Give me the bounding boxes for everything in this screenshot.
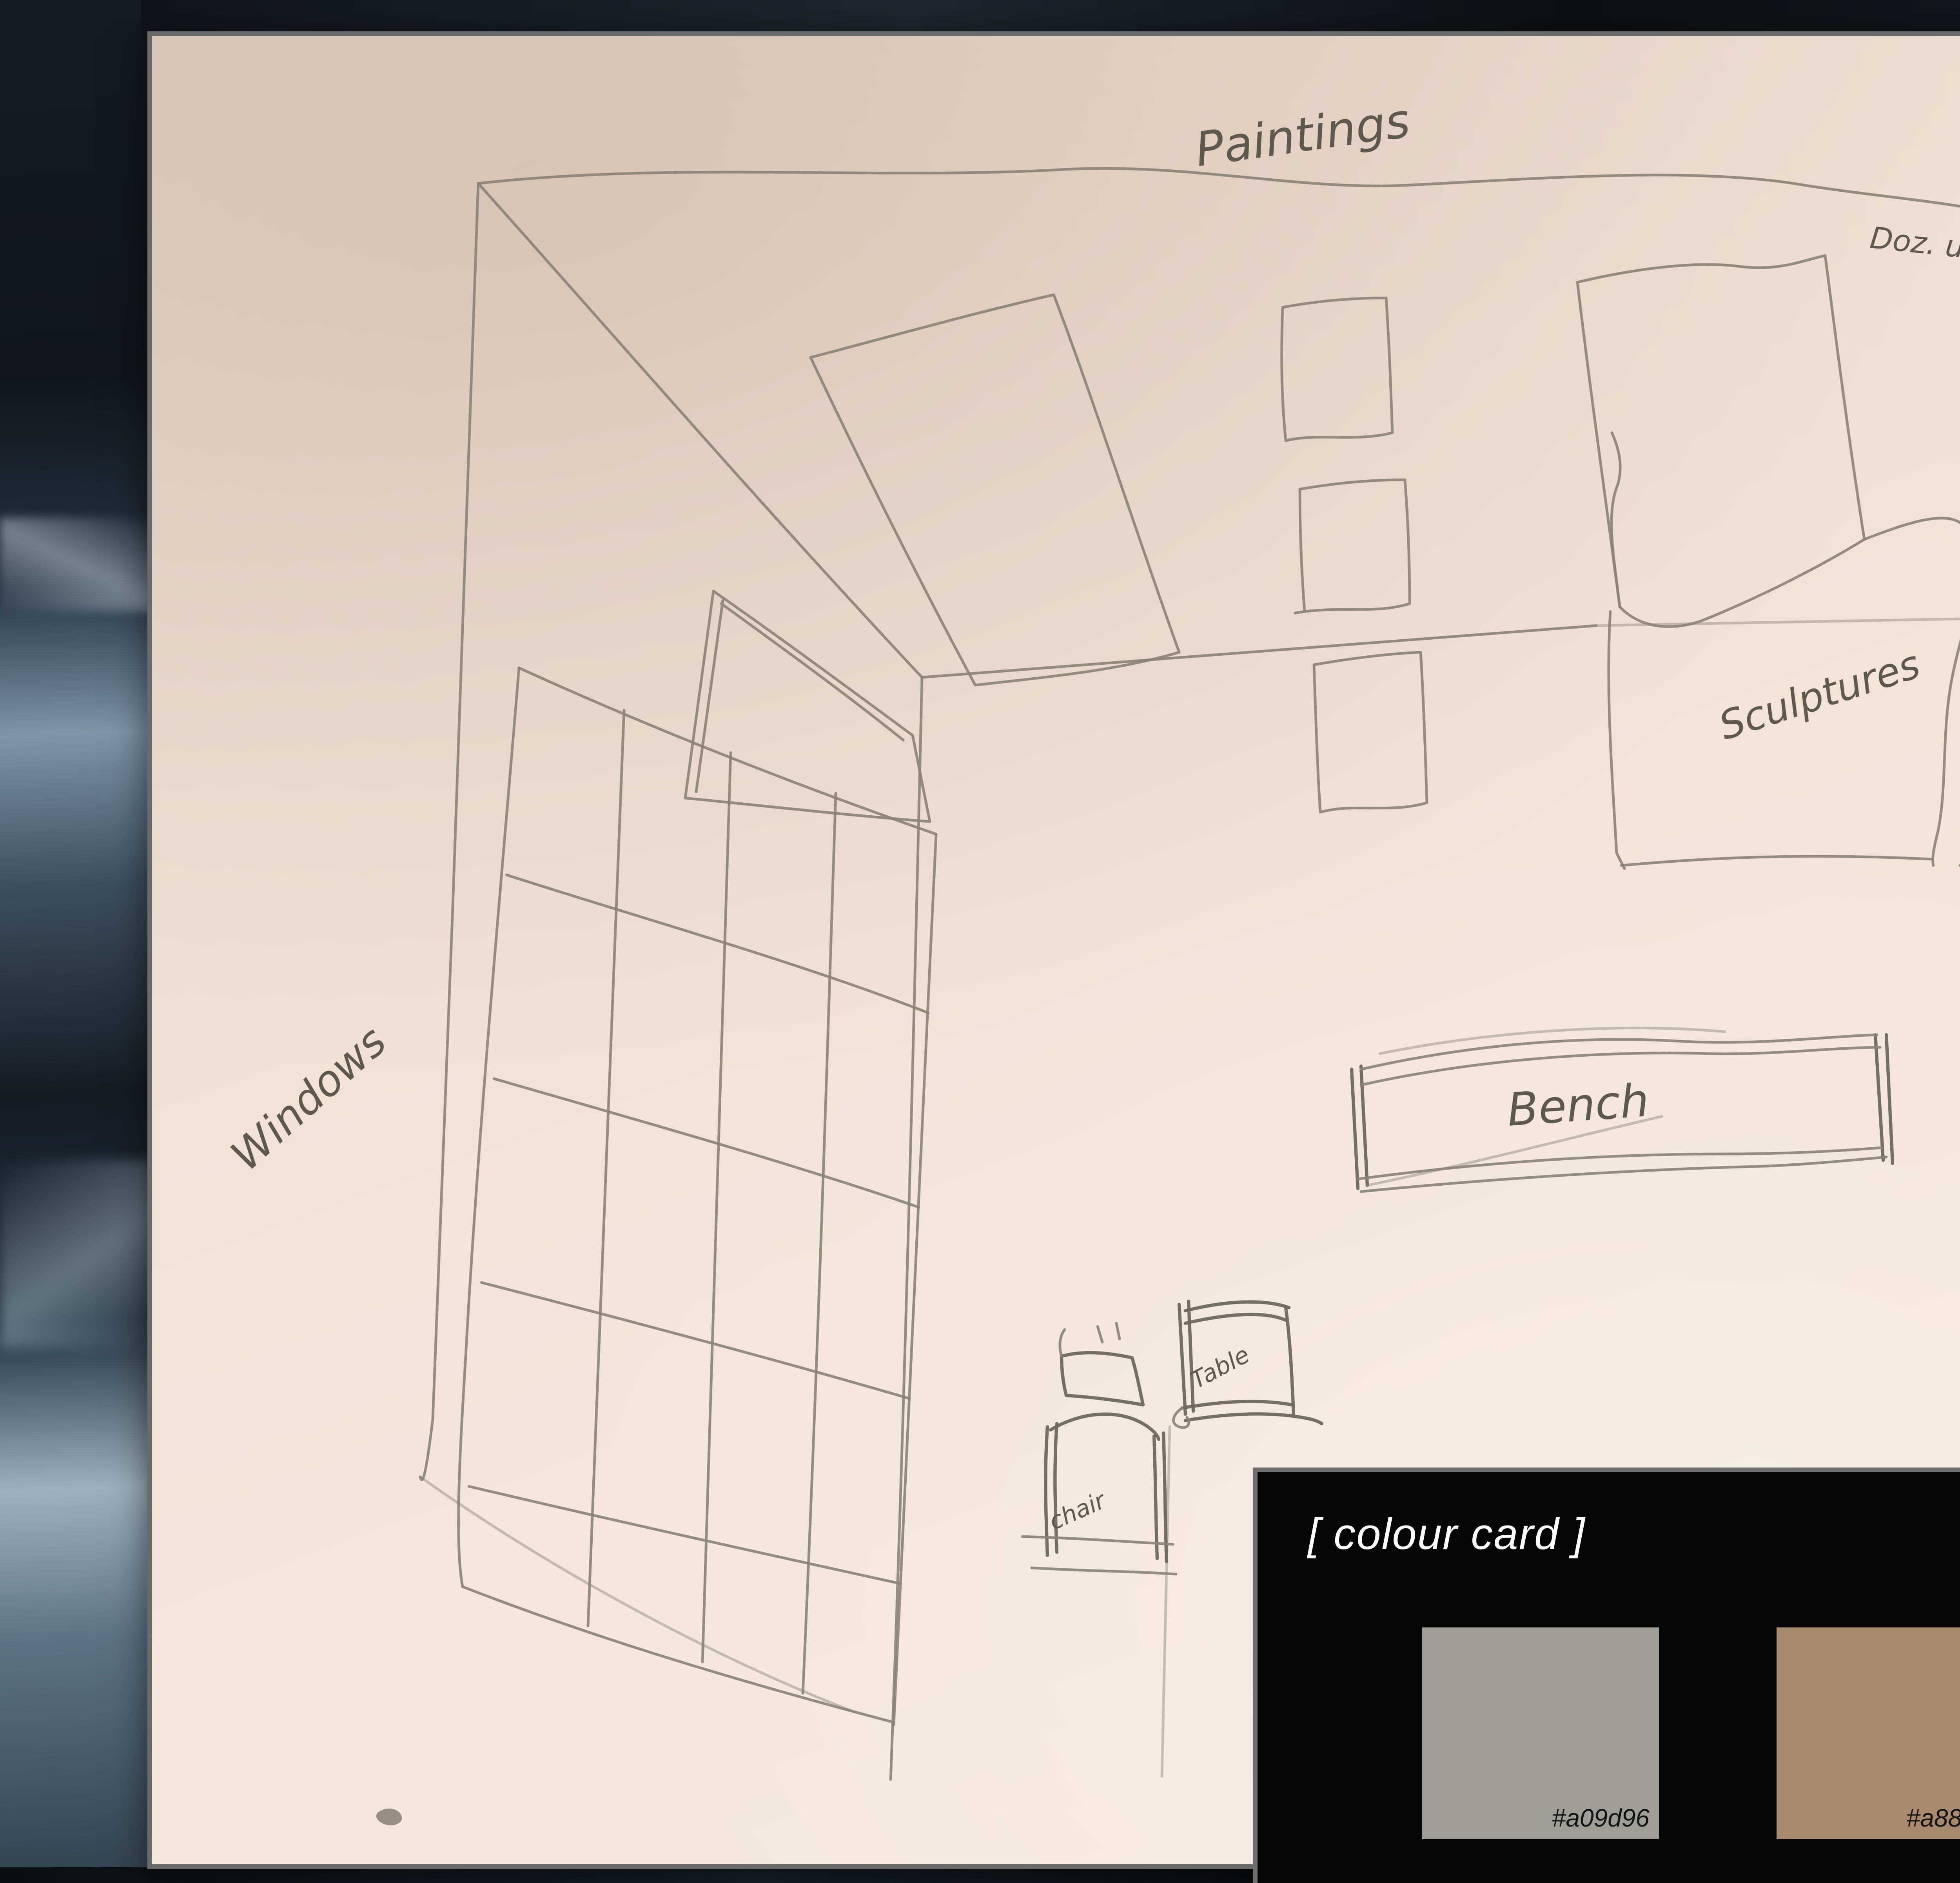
swatch-grey-hex-label: #a09d96 [1552,1806,1650,1834]
colour-card-title: [ colour card ] [1308,1510,1586,1560]
colour-card: [ colour card ] #a09d96 #a8896d #ffffff [1253,1468,1960,1883]
marble-vein [0,1160,154,1348]
marble-vein [0,517,154,611]
screenshot: Paintings Doz. u Kan Sculptures Windows … [0,0,1960,1883]
swatch-tan: #a8896d [1777,1627,1960,1839]
swatch-grey: #a09d96 [1422,1627,1659,1839]
swatch-tan-hex-label: #a8896d [1906,1806,1960,1834]
marble-background-bottom [0,1867,1270,1883]
marble-background-left [0,0,154,1883]
